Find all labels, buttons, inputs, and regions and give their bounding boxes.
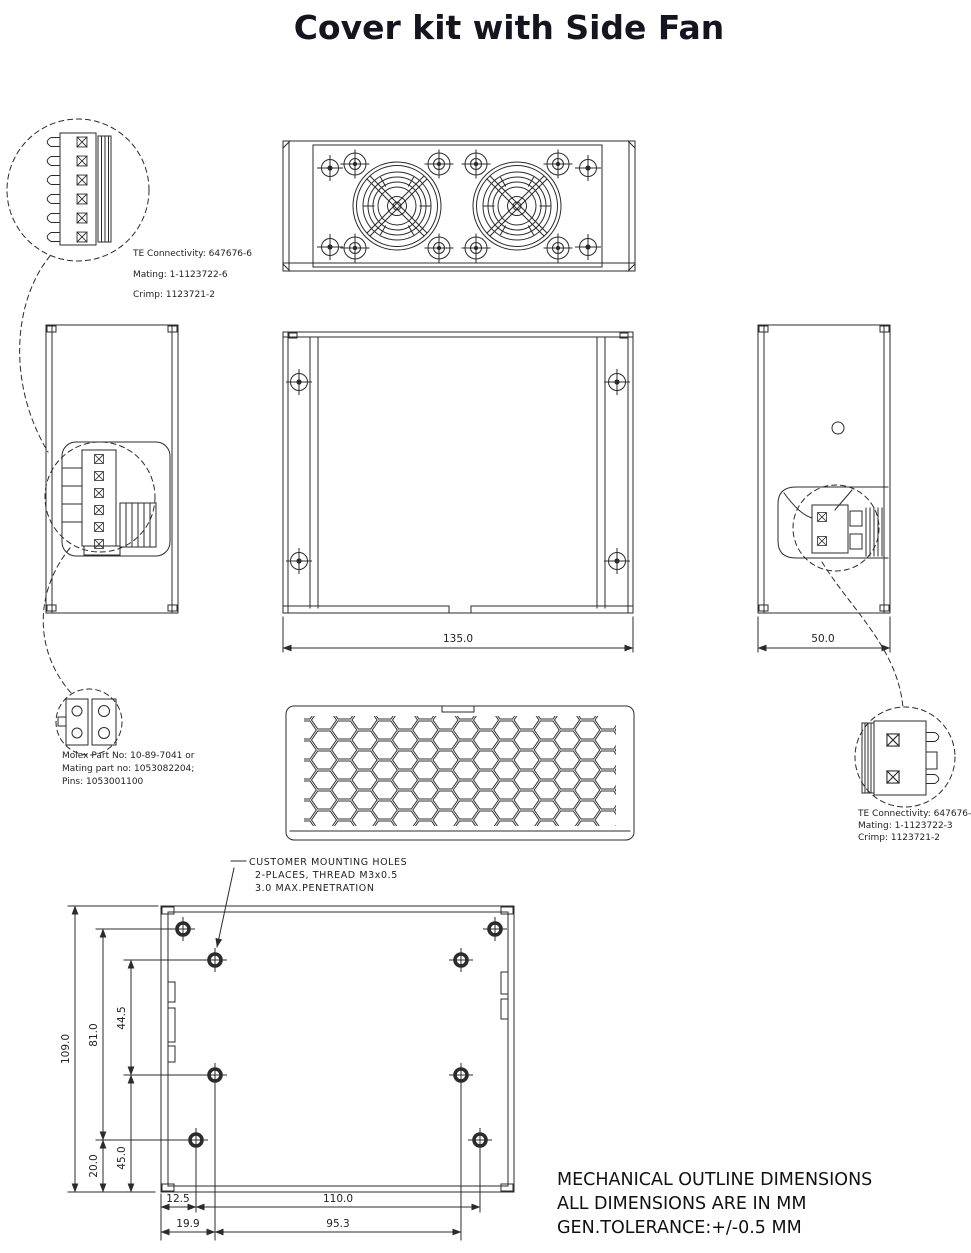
- dim-side-width: 50.0: [811, 633, 834, 645]
- drawing-labels: Cover kit with Side Fan TE Connectivity:…: [60, 8, 971, 1238]
- fan-screw-icon: [544, 150, 572, 178]
- mounting-hole: [204, 949, 227, 972]
- bottom-view-dimension-lines: [68, 906, 480, 1240]
- detail-aux-connector: [56, 689, 122, 755]
- aux-connector-part: Molex Part No: 10-89-7041 or: [62, 751, 195, 761]
- input-connector-crimp: Crimp: 1123721-2: [133, 290, 215, 300]
- right-side-view: [758, 325, 890, 613]
- dim-bottom-offset: 20.0: [88, 1154, 100, 1177]
- fan-connector-mating: Mating: 1-1123722-3: [858, 821, 953, 831]
- corner-screw-icon: [318, 235, 343, 260]
- fan-screw-icon: [425, 150, 453, 178]
- fan-screw-icon: [462, 150, 490, 178]
- aux-connector-pins: Pins: 1053001100: [62, 777, 144, 787]
- fan-grille-right: [473, 162, 561, 250]
- vent-hole: [832, 422, 844, 434]
- input-connector-mating: Mating: 1-1123722-6: [133, 270, 228, 280]
- input-connector-part: TE Connectivity: 647676-6: [132, 249, 252, 259]
- dim-hole-span-v: 81.0: [88, 1023, 100, 1046]
- dim-inner-span-h: 95.3: [326, 1218, 349, 1230]
- dim-overall-height: 109.0: [60, 1034, 72, 1064]
- dim-left-hole-offset: 12.5: [166, 1193, 189, 1205]
- fan-connector-crimp: Crimp: 1123721-2: [858, 833, 940, 843]
- corner-screw-icon: [576, 156, 601, 181]
- mount-screw-icon: [605, 549, 630, 574]
- general-note-line2: ALL DIMENSIONS ARE IN MM: [557, 1194, 807, 1214]
- fan-screw-icon: [462, 234, 490, 262]
- note-leader-arrow: [217, 868, 234, 947]
- general-note-line3: GEN.TOLERANCE:+/-0.5 MM: [557, 1218, 802, 1238]
- honeycomb-vent-pattern: [304, 716, 616, 826]
- mounting-hole: [450, 949, 473, 972]
- mount-screw-icon: [287, 370, 312, 395]
- fan-connector-part: TE Connectivity: 647676-3: [857, 809, 971, 819]
- corner-screw-icon: [318, 156, 343, 181]
- dim-inner-span-v: 44.5: [116, 1006, 128, 1029]
- mounting-note-line3: 3.0 MAX.PENETRATION: [255, 883, 375, 894]
- aux-connector-mating: Mating part no: 1053082204;: [62, 764, 194, 774]
- dim-hole-span-h: 110.0: [323, 1193, 353, 1205]
- vent-cover-view: [286, 706, 634, 840]
- detail-input-connector: [7, 119, 149, 261]
- left-side-view: [45, 325, 178, 613]
- general-note-line1: MECHANICAL OUTLINE DIMENSIONS: [557, 1170, 872, 1190]
- fan-screw-icon: [425, 234, 453, 262]
- mount-screw-icon: [287, 549, 312, 574]
- dim-inner-left-offset: 19.9: [176, 1218, 199, 1230]
- top-view-fan-cover: [283, 141, 635, 271]
- fan-screw-icon: [341, 150, 369, 178]
- detail-fan-connector: [855, 707, 955, 807]
- mechanical-drawing: Cover kit with Side Fan TE Connectivity:…: [0, 0, 971, 1253]
- fan-grille-left: [353, 162, 441, 250]
- fan-screw-icon: [544, 234, 572, 262]
- dim-mid-offset: 45.0: [116, 1146, 128, 1169]
- mounting-note-line2: 2-PLACES, THREAD M3x0.5: [255, 870, 398, 881]
- fan-screw-icon: [341, 234, 369, 262]
- drawing-page: Cover kit with Side Fan TE Connectivity:…: [0, 0, 971, 1253]
- mounting-note-line1: CUSTOMER MOUNTING HOLES: [249, 857, 407, 868]
- dim-front-width: 135.0: [443, 633, 473, 645]
- mount-screw-icon: [605, 370, 630, 395]
- detail-circle: [855, 707, 955, 807]
- front-view: [283, 332, 633, 613]
- corner-screw-icon: [576, 235, 601, 260]
- page-title: Cover kit with Side Fan: [294, 8, 725, 47]
- mounting-hole: [484, 918, 507, 941]
- mounting-hole: [172, 918, 195, 941]
